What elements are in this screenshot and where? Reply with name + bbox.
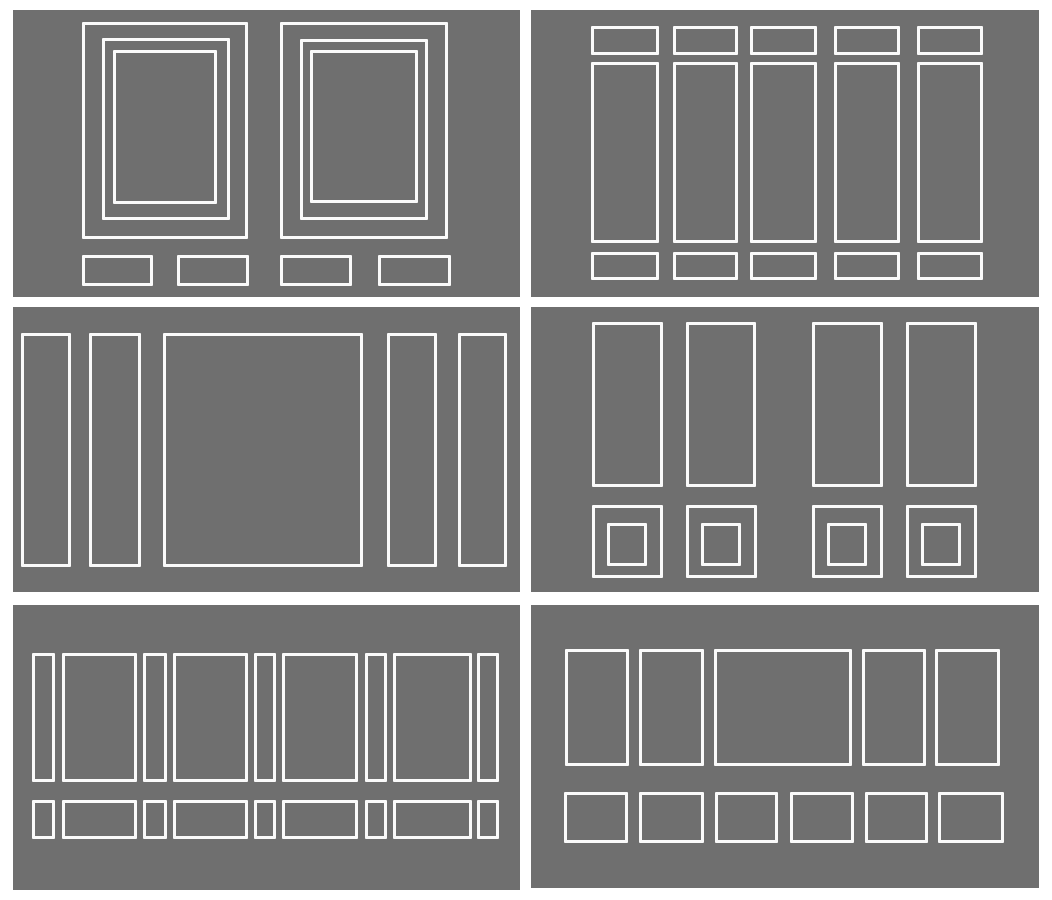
molding-frame — [750, 26, 817, 55]
molding-frame — [113, 50, 217, 204]
molding-frame — [715, 792, 778, 843]
molding-frame — [143, 800, 167, 839]
wall-layout-middle-right — [531, 307, 1039, 592]
molding-frame — [143, 653, 167, 782]
molding-frame — [865, 792, 928, 843]
molding-frame — [32, 800, 55, 839]
molding-frame — [673, 26, 738, 55]
molding-frame — [591, 252, 659, 280]
molding-frame — [592, 322, 663, 487]
molding-frame — [565, 649, 629, 766]
molding-frame — [591, 26, 659, 55]
molding-frame — [254, 653, 276, 782]
molding-frame — [310, 50, 418, 203]
molding-frame — [477, 653, 499, 782]
molding-frame — [607, 523, 647, 566]
molding-frame — [673, 252, 738, 280]
molding-frame — [32, 653, 55, 782]
molding-frame — [282, 653, 358, 782]
wall-layout-bottom-left — [13, 605, 520, 890]
molding-frame — [365, 800, 387, 839]
molding-frame — [280, 255, 352, 286]
wall-layout-middle-left — [13, 307, 520, 592]
molding-frame — [701, 523, 741, 566]
molding-frame — [686, 322, 756, 487]
molding-frame — [935, 649, 1000, 766]
molding-frame — [790, 792, 854, 843]
molding-frame — [906, 322, 977, 487]
molding-frame — [827, 523, 867, 566]
molding-frame — [750, 252, 817, 280]
molding-frame — [21, 333, 71, 567]
molding-frame — [673, 62, 738, 243]
molding-frame — [917, 252, 983, 280]
molding-frame — [89, 333, 141, 567]
wall-layout-top-right — [531, 10, 1039, 297]
molding-frame — [564, 792, 628, 843]
molding-frame — [714, 649, 852, 766]
molding-frame — [393, 800, 472, 839]
molding-frame — [254, 800, 276, 839]
molding-frame — [62, 653, 137, 782]
molding-frame — [834, 26, 900, 55]
molding-frame — [173, 653, 248, 782]
molding-frame — [834, 252, 900, 280]
molding-frame — [750, 62, 817, 243]
molding-frame — [163, 333, 363, 567]
molding-frame — [387, 333, 437, 567]
molding-frame — [365, 653, 387, 782]
wall-layout-bottom-right — [531, 605, 1039, 888]
molding-frame — [938, 792, 1004, 843]
molding-frame — [393, 653, 472, 782]
molding-frame — [812, 322, 883, 487]
molding-frame — [477, 800, 499, 839]
molding-frame — [282, 800, 358, 839]
molding-frame — [862, 649, 926, 766]
molding-frame — [62, 800, 137, 839]
molding-frame — [639, 649, 704, 766]
molding-frame — [917, 26, 983, 55]
molding-frame — [591, 62, 659, 243]
molding-frame — [639, 792, 704, 843]
molding-frame — [177, 255, 249, 286]
molding-frame — [917, 62, 983, 243]
molding-frame — [378, 255, 451, 286]
molding-frame — [834, 62, 900, 243]
molding-frame — [173, 800, 248, 839]
molding-frame — [82, 255, 153, 286]
wall-layout-top-left — [13, 10, 520, 297]
molding-frame — [458, 333, 507, 567]
layout-canvas — [0, 0, 1052, 900]
molding-frame — [921, 523, 961, 566]
